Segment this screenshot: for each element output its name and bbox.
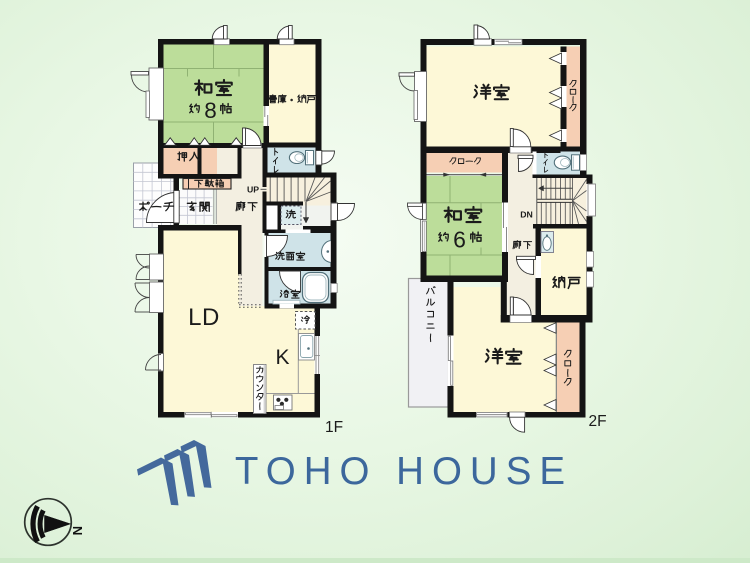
svg-text:TOHO HOUSE: TOHO HOUSE — [235, 450, 573, 493]
svg-text:6: 6 — [453, 227, 466, 253]
svg-text:LD: LD — [188, 304, 220, 331]
svg-text:2F: 2F — [588, 413, 606, 430]
svg-text:N: N — [70, 526, 85, 535]
svg-text:1F: 1F — [325, 419, 343, 436]
svg-text:UP: UP — [247, 184, 259, 194]
svg-text:8: 8 — [204, 98, 217, 123]
svg-text:DN: DN — [520, 210, 533, 220]
svg-text:K: K — [275, 346, 289, 369]
